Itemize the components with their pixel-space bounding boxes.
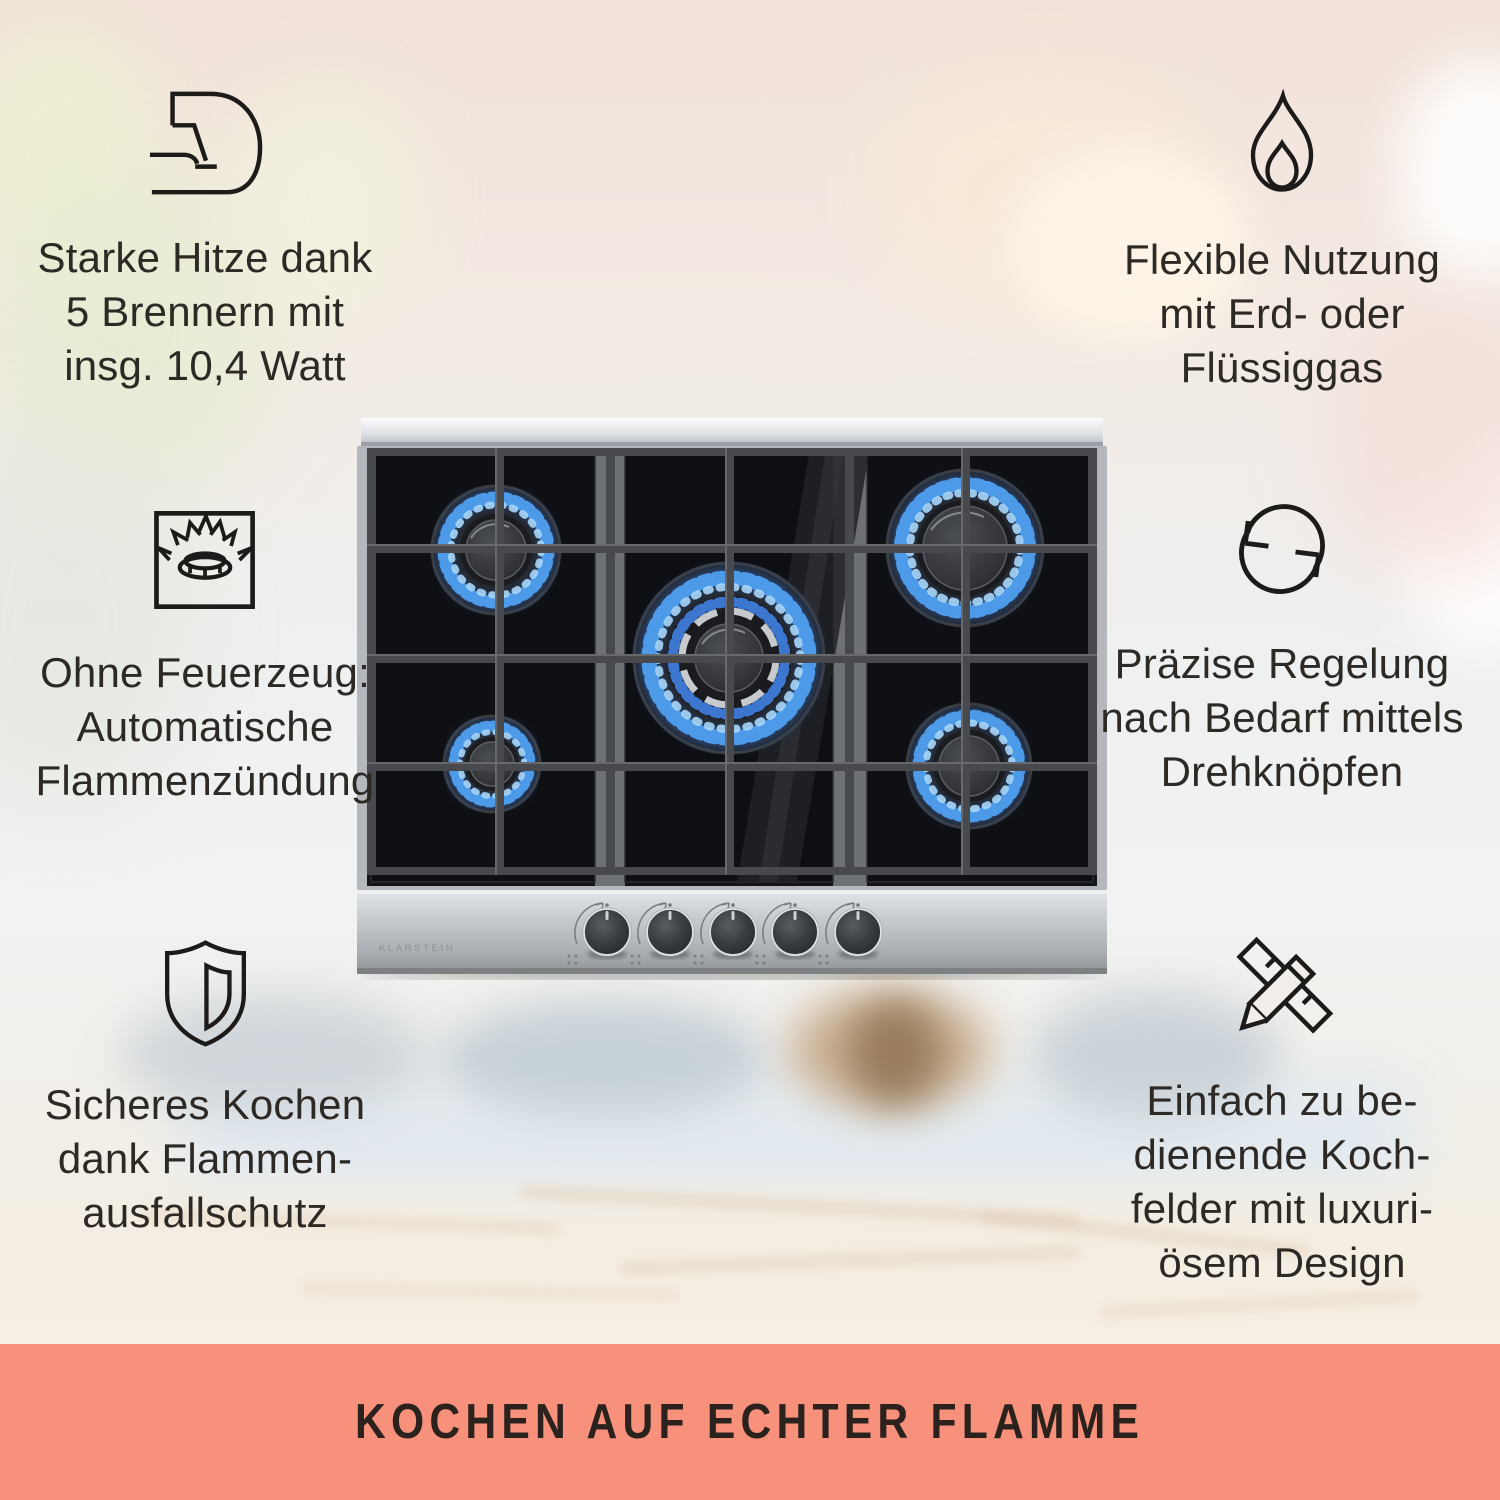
feature-strong-heat: Starke Hitze dank 5 Brennern mit insg. 1… [0, 85, 425, 393]
feature-text-line: dank Flammen- [45, 1132, 366, 1186]
rotate-arrows-icon [1222, 491, 1342, 611]
feature-text-line: 5 Brennern mit [38, 285, 373, 339]
shield-icon [145, 932, 265, 1052]
hob-control-panel: KLARSTEIN [357, 890, 1107, 974]
feature-text-line: dienende Koch- [1131, 1128, 1433, 1182]
feature-text-line: Präzise Regelung [1100, 637, 1463, 691]
feature-text-line: Drehknöpfen [1100, 745, 1463, 799]
feature-text-line: Starke Hitze dank [38, 231, 373, 285]
background-blur-blob [440, 1000, 770, 1115]
ruler-pencil-icon [1222, 928, 1342, 1048]
background-blur-blob [850, 1000, 940, 1105]
flame-icon [1222, 87, 1342, 207]
product-infographic: KLARSTEIN [0, 0, 1500, 1500]
background-blur-blob [790, 990, 990, 1110]
gas-burner-ignition-icon [145, 500, 265, 620]
feature-text-line: felder mit luxuri- [1131, 1182, 1433, 1236]
feature-text-line: Einfach zu be- [1131, 1074, 1433, 1128]
feature-flexible-gas: Flexible Nutzung mit Erd- oder Flüssigga… [1062, 87, 1500, 395]
flexed-arm-icon [145, 85, 265, 205]
feature-text-line: Sicheres Kochen [45, 1078, 366, 1132]
feature-text-line: mit Erd- oder [1124, 287, 1440, 341]
feature-flame-failure-safety: Sicheres Kochen dank Flammen- ausfallsch… [0, 932, 425, 1240]
bottom-banner: KOCHEN AUF ECHTER FLAMME [0, 1344, 1500, 1500]
feature-text-line: nach Bedarf mittels [1100, 691, 1463, 745]
feature-precise-control: Präzise Regelung nach Bedarf mittels Dre… [1062, 491, 1500, 799]
feature-text-line: Flammenzündung [36, 754, 375, 808]
feature-text-line: insg. 10,4 Watt [38, 339, 373, 393]
feature-text-line: Automatische [36, 700, 375, 754]
feature-text-line: Flüssiggas [1124, 341, 1440, 395]
feature-text-line: ausfallschutz [45, 1186, 366, 1240]
feature-text-line: Flexible Nutzung [1124, 233, 1440, 287]
feature-luxurious-design: Einfach zu be- dienende Koch- felder mit… [1062, 928, 1500, 1290]
hob-top-rim [361, 418, 1103, 444]
product-photo-gas-hob: KLARSTEIN [357, 418, 1107, 980]
feature-text-line: ösem Design [1131, 1236, 1433, 1290]
banner-headline: KOCHEN AUF ECHTER FLAMME [355, 1394, 1144, 1450]
feature-text-line: Ohne Feuerzeug: [36, 646, 375, 700]
feature-auto-ignition: Ohne Feuerzeug: Automatische Flammenzünd… [0, 500, 425, 808]
